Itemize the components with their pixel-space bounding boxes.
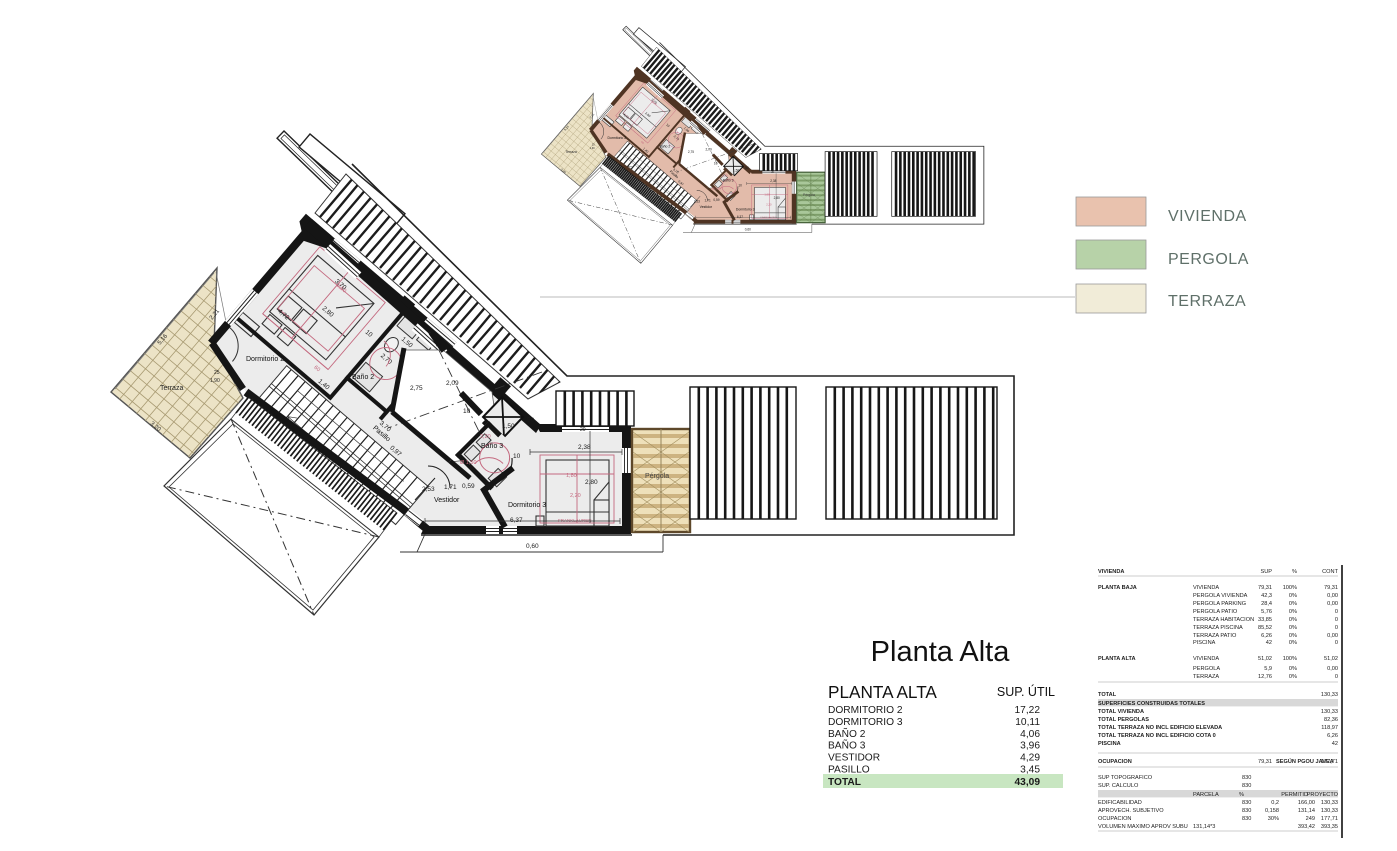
svg-text:42,3: 42,3 (1261, 593, 1272, 599)
svg-text:100%: 100% (1283, 585, 1297, 591)
svg-text:0%: 0% (1289, 617, 1297, 623)
svg-text:830: 830 (1242, 783, 1251, 789)
svg-text:VIVIENDA: VIVIENDA (1098, 569, 1124, 575)
svg-text:0: 0 (1335, 625, 1338, 631)
svg-text:79,31: 79,31 (1258, 585, 1272, 591)
svg-text:TOTAL: TOTAL (828, 777, 861, 788)
svg-text:0,158: 0,158 (1265, 808, 1279, 814)
svg-text:130,33: 130,33 (1321, 709, 1338, 715)
svg-text:3,96: 3,96 (1020, 741, 1040, 752)
svg-text:PERGOLA: PERGOLA (1168, 251, 1249, 268)
svg-text:TOTAL VIVIENDA: TOTAL VIVIENDA (1098, 709, 1144, 715)
svg-text:4,06: 4,06 (1020, 729, 1040, 740)
svg-text:0%: 0% (1289, 666, 1297, 672)
svg-text:OCUPACION: OCUPACION (1098, 759, 1132, 765)
svg-text:0%: 0% (1289, 674, 1297, 680)
svg-text:PERGOLA VIVIENDA: PERGOLA VIVIENDA (1193, 593, 1248, 599)
svg-text:42: 42 (1266, 640, 1272, 646)
svg-text:Planta Alta: Planta Alta (871, 636, 1011, 668)
svg-text:VESTIDOR: VESTIDOR (828, 753, 880, 764)
svg-text:TOTAL: TOTAL (1098, 692, 1117, 698)
svg-text:CONT: CONT (1322, 569, 1338, 575)
svg-text:131,14*3: 131,14*3 (1193, 824, 1215, 830)
svg-text:118,97: 118,97 (1321, 725, 1338, 731)
svg-text:6,26: 6,26 (1261, 633, 1272, 639)
svg-text:79,31: 79,31 (1324, 585, 1338, 591)
svg-text:6,26: 6,26 (1327, 733, 1338, 739)
svg-text:SUP. ÚTIL: SUP. ÚTIL (997, 684, 1055, 699)
svg-text:PLANTA ALTA: PLANTA ALTA (1098, 656, 1136, 662)
svg-text:VIVIENDA: VIVIENDA (1193, 656, 1219, 662)
svg-text:0%: 0% (1289, 601, 1297, 607)
svg-text:5,76: 5,76 (1261, 609, 1272, 615)
svg-text:0,2: 0,2 (1271, 800, 1279, 806)
svg-text:0%: 0% (1289, 593, 1297, 599)
svg-text:393,42: 393,42 (1298, 824, 1315, 830)
svg-text:5,9: 5,9 (1264, 666, 1272, 672)
svg-text:51,02: 51,02 (1324, 656, 1338, 662)
svg-text:30%: 30% (1268, 816, 1279, 822)
svg-text:82,36: 82,36 (1324, 717, 1338, 723)
svg-text:TERRAZA: TERRAZA (1193, 674, 1219, 680)
svg-text:830: 830 (1242, 775, 1251, 781)
svg-text:166,00: 166,00 (1298, 800, 1315, 806)
svg-text:%: % (1239, 792, 1244, 798)
svg-text:4,29: 4,29 (1020, 753, 1040, 764)
svg-text:393,35: 393,35 (1321, 824, 1338, 830)
svg-text:PISCINA: PISCINA (1098, 741, 1121, 747)
svg-text:SUP TOPOGRAFICO: SUP TOPOGRAFICO (1098, 775, 1153, 781)
svg-text:SUP: SUP (1260, 569, 1272, 575)
svg-text:131,14: 131,14 (1298, 808, 1315, 814)
svg-text:3,45: 3,45 (1020, 765, 1040, 776)
svg-text:TERRAZA PISCINA: TERRAZA PISCINA (1193, 625, 1243, 631)
svg-text:17,22: 17,22 (1015, 705, 1041, 716)
svg-text:130,33: 130,33 (1321, 692, 1338, 698)
svg-text:28,4: 28,4 (1261, 601, 1272, 607)
svg-text:BAÑO 2: BAÑO 2 (828, 727, 866, 740)
svg-text:APROVECH. SUBJETIVO: APROVECH. SUBJETIVO (1098, 808, 1164, 814)
svg-text:PERMITID: PERMITID (1281, 792, 1308, 798)
svg-text:TERRAZA HABITACION: TERRAZA HABITACION (1193, 617, 1254, 623)
svg-text:0%: 0% (1289, 625, 1297, 631)
svg-text:SUPERFICIES CONSTRUIDAS TOTALE: SUPERFICIES CONSTRUIDAS TOTALES (1098, 701, 1205, 707)
svg-text:EDIFICABILIDAD: EDIFICABILIDAD (1098, 800, 1142, 806)
svg-text:830: 830 (1242, 808, 1251, 814)
svg-text:VOLUMEN MAXIMO APROV SUBU: VOLUMEN MAXIMO APROV SUBU (1098, 824, 1188, 830)
svg-text:79,31: 79,31 (1258, 759, 1272, 765)
svg-text:TOTAL PERGOLAS: TOTAL PERGOLAS (1098, 717, 1149, 723)
svg-text:249: 249 (1306, 816, 1315, 822)
svg-text:177,71: 177,71 (1321, 759, 1338, 765)
svg-text:100%: 100% (1283, 656, 1297, 662)
svg-text:OCUPACION: OCUPACION (1098, 816, 1131, 822)
svg-text:PARCELA: PARCELA (1193, 792, 1219, 798)
svg-text:0,00: 0,00 (1327, 633, 1338, 639)
svg-text:0: 0 (1335, 640, 1338, 646)
svg-text:12,76: 12,76 (1258, 674, 1272, 680)
svg-text:0,00: 0,00 (1327, 666, 1338, 672)
svg-text:SUP. CALCULO: SUP. CALCULO (1098, 783, 1139, 789)
svg-text:0,00: 0,00 (1327, 593, 1338, 599)
svg-text:DORMITORIO 2: DORMITORIO 2 (828, 705, 903, 716)
svg-text:VIVIENDA: VIVIENDA (1168, 208, 1247, 225)
svg-text:PERGOLA: PERGOLA (1193, 666, 1220, 672)
svg-text:177,71: 177,71 (1321, 816, 1338, 822)
svg-text:DORMITORIO 3: DORMITORIO 3 (828, 717, 903, 728)
svg-text:BAÑO 3: BAÑO 3 (828, 739, 866, 752)
svg-text:43,09: 43,09 (1015, 777, 1041, 788)
svg-text:VIVIENDA: VIVIENDA (1193, 585, 1219, 591)
svg-text:130,33: 130,33 (1321, 800, 1338, 806)
svg-text:0%: 0% (1289, 609, 1297, 615)
svg-text:PERGOLA PATIO: PERGOLA PATIO (1193, 609, 1238, 615)
svg-text:0%: 0% (1289, 633, 1297, 639)
svg-text:10,11: 10,11 (1015, 717, 1040, 728)
svg-text:PROYECTO: PROYECTO (1307, 792, 1339, 798)
svg-text:130,33: 130,33 (1321, 808, 1338, 814)
svg-text:0%: 0% (1289, 640, 1297, 646)
svg-text:0,00: 0,00 (1327, 601, 1338, 607)
svg-text:PLANTA BAJA: PLANTA BAJA (1098, 585, 1137, 591)
svg-text:TOTAL TERRAZA NO INCL EDIFICIO: TOTAL TERRAZA NO INCL EDIFICIO ELEVADA (1098, 725, 1222, 731)
svg-text:%: % (1292, 569, 1297, 575)
svg-text:85,52: 85,52 (1258, 625, 1272, 631)
svg-text:PASILLO: PASILLO (828, 765, 870, 776)
svg-text:TERRAZA: TERRAZA (1168, 293, 1246, 310)
svg-text:PLANTA ALTA: PLANTA ALTA (828, 682, 937, 702)
svg-text:TERRAZA PATIO: TERRAZA PATIO (1193, 633, 1237, 639)
svg-text:PISCINA: PISCINA (1193, 640, 1216, 646)
svg-text:42: 42 (1332, 741, 1338, 747)
svg-text:830: 830 (1242, 816, 1251, 822)
svg-text:TOTAL TERRAZA NO INCL EDIFICIO: TOTAL TERRAZA NO INCL EDIFICIO COTA 0 (1098, 733, 1216, 739)
svg-text:0: 0 (1335, 617, 1338, 623)
svg-text:PERGOLA PARKING: PERGOLA PARKING (1193, 601, 1246, 607)
svg-text:830: 830 (1242, 800, 1251, 806)
svg-text:0: 0 (1335, 674, 1338, 680)
svg-text:33,85: 33,85 (1258, 617, 1272, 623)
svg-text:0: 0 (1335, 609, 1338, 615)
svg-text:51,02: 51,02 (1258, 656, 1272, 662)
